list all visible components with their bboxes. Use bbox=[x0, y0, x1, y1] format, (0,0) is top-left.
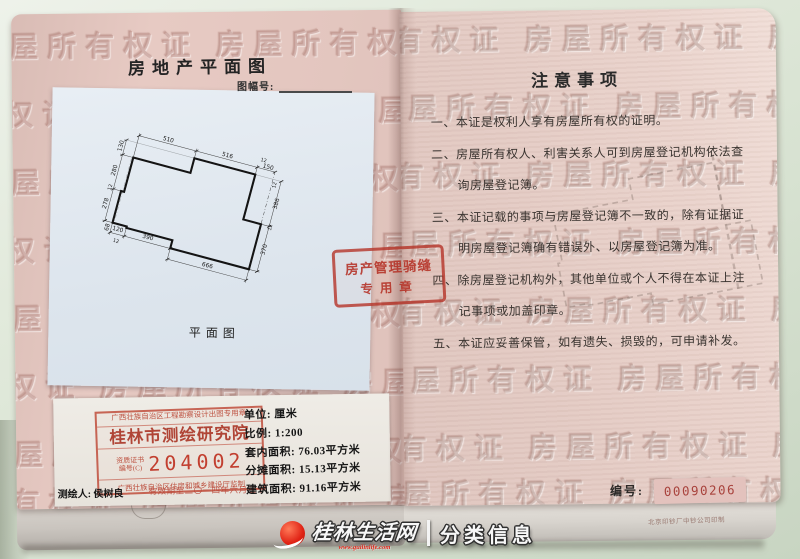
notice-line: 三、本证记载的事项与房屋登记簿不一致的，除有证据证 bbox=[432, 205, 766, 240]
cert-number: 204002 bbox=[148, 449, 245, 477]
notice-line: 二、房屋所有权人、利害关系人可到房屋登记机构依法查 bbox=[431, 142, 765, 177]
notice-line: 明房屋登记簿确有错误外、以房屋登记簿为准。 bbox=[432, 236, 766, 271]
dim-label: 386 bbox=[273, 197, 282, 210]
site-logo-icon bbox=[280, 521, 305, 546]
dim-label: 278 bbox=[102, 197, 111, 210]
notice-title: 注意事项 bbox=[531, 65, 623, 91]
dim-label: 150 bbox=[262, 163, 275, 172]
notice-line: 五、本证应妥善保管，如有遗失、损毁的，可申请补发。 bbox=[433, 331, 767, 366]
cross-seam-stamp-line1: 房产管理骑缝 bbox=[345, 254, 433, 279]
floor-plan-svg: 510 516 12 150 130 280 12 278 68 120 390… bbox=[85, 126, 302, 294]
survey-info-sheet: 广西壮族自治区工程勘察设计出图专用章 桂林市测绘研究院 资质证书 编号(C) 2… bbox=[53, 393, 391, 506]
serial-number: 00090206 bbox=[664, 482, 737, 499]
seal-cert-row: 资质证书 编号(C) 204002 bbox=[98, 447, 263, 481]
seal-institute-name: 桂林市测绘研究院 bbox=[97, 420, 262, 449]
dim-label: 130 bbox=[117, 140, 126, 153]
dimension-lines bbox=[96, 130, 286, 286]
info-building-area: 建筑面积: 91.16平方米 bbox=[246, 478, 362, 500]
notice-line: 记事项或加盖印章。 bbox=[433, 299, 767, 334]
map-sheet-label: 图幅号: bbox=[237, 78, 274, 93]
dim-label: 68 bbox=[104, 223, 112, 232]
site-tagline: 分类信息 bbox=[440, 519, 536, 548]
notice-items: 一、本证是权利人享有房屋所有权的证明。 二、房屋所有权人、利害关系人可到房屋登记… bbox=[431, 110, 768, 365]
plan-outline bbox=[110, 142, 273, 269]
cross-seam-stamp-line2: 专用章 bbox=[360, 275, 419, 297]
dim-label: 516 bbox=[221, 152, 234, 161]
site-watermark: 桂林生活网 www.guilinlife.com 分类信息 bbox=[280, 512, 536, 554]
site-name: 桂林生活网 bbox=[310, 516, 418, 545]
cross-seam-stamp: 房产管理骑缝 专用章 bbox=[332, 244, 447, 308]
watermark-text: 房屋所有权证 房屋所有权证 房屋所有权证 房屋所有权证 bbox=[399, 417, 780, 469]
dim-label: 666 bbox=[201, 262, 214, 271]
surveyor-name: 测绘人: 侯树良 bbox=[58, 485, 124, 501]
serial-label: 编号: bbox=[610, 482, 644, 499]
dimension-labels: 510 516 12 150 130 280 12 278 68 120 390… bbox=[94, 126, 291, 283]
dim-label: 280 bbox=[111, 164, 120, 177]
separator-bar bbox=[427, 520, 430, 546]
area-info-block: 单位: 厘米 比例: 1:200 套内面积: 76.03平方米 分摊面积: 15… bbox=[244, 403, 362, 500]
cert-label-line2: 编号(C) bbox=[116, 464, 144, 473]
certificate-photo: 房屋所有权证 房屋所有权证 房屋所有权证 房屋所有权证 房屋所有权证 房屋所有权… bbox=[0, 0, 800, 559]
dim-label: 510 bbox=[162, 136, 175, 145]
watermark-text: 房屋所有权证 房屋所有权证 房屋所有权证 房屋所有权证 bbox=[399, 9, 780, 61]
floor-plan-paper: 510 516 12 150 130 280 12 278 68 120 390… bbox=[47, 87, 374, 391]
dim-label: 370 bbox=[260, 243, 269, 256]
serial-row: 编号: 00090206 bbox=[610, 478, 746, 503]
notice-line: 询房屋登记簿。 bbox=[431, 173, 765, 208]
dim-label: 12 bbox=[112, 238, 120, 245]
survey-seal-box: 广西壮族自治区工程勘察设计出图专用章 桂林市测绘研究院 资质证书 编号(C) 2… bbox=[95, 406, 266, 496]
plan-caption: 平面图 bbox=[166, 323, 262, 342]
notice-line: 一、本证是权利人享有房屋所有权的证明。 bbox=[431, 110, 765, 145]
notice-line: 四、除房屋登记机构外，其他单位或个人不得在本证上注 bbox=[432, 268, 766, 303]
map-sheet-blank-line bbox=[279, 91, 352, 93]
serial-patch: 00090206 bbox=[654, 477, 747, 504]
dim-label: 12 bbox=[267, 224, 274, 232]
cert-label: 资质证书 编号(C) bbox=[116, 456, 145, 473]
page-title-floor-plan: 房地产平面图 bbox=[128, 52, 272, 80]
site-name-block: 桂林生活网 www.guilinlife.com bbox=[312, 516, 417, 551]
dim-label: 12 bbox=[260, 157, 268, 164]
